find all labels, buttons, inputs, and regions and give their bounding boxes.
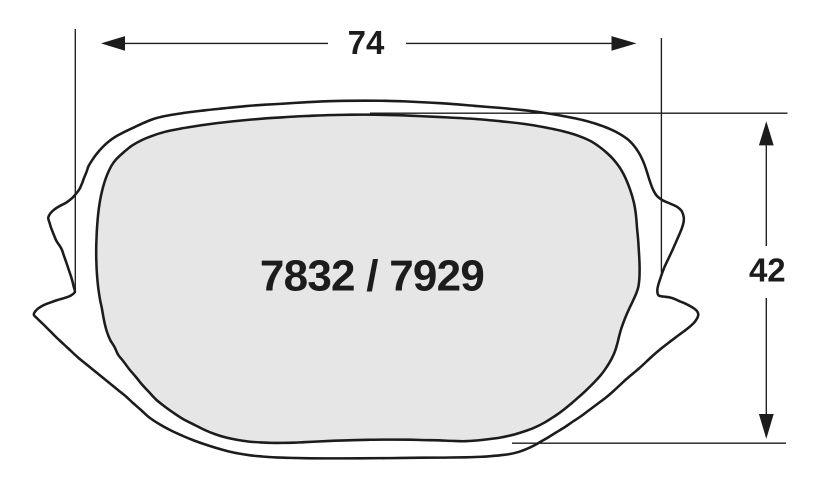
svg-text:42: 42 [749,252,786,289]
svg-text:74: 74 [348,24,385,61]
svg-text:7832 / 7929: 7832 / 7929 [260,252,484,301]
